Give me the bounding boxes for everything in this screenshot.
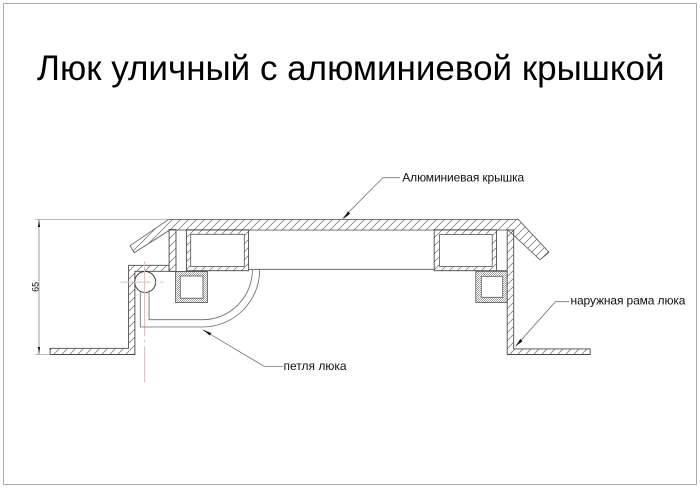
svg-text:наружная рама люка: наружная рама люка <box>571 294 686 308</box>
svg-text:65: 65 <box>30 282 40 292</box>
svg-text:Алюминиевая крышка: Алюминиевая крышка <box>402 170 524 184</box>
svg-text:петля люка: петля люка <box>284 359 347 373</box>
